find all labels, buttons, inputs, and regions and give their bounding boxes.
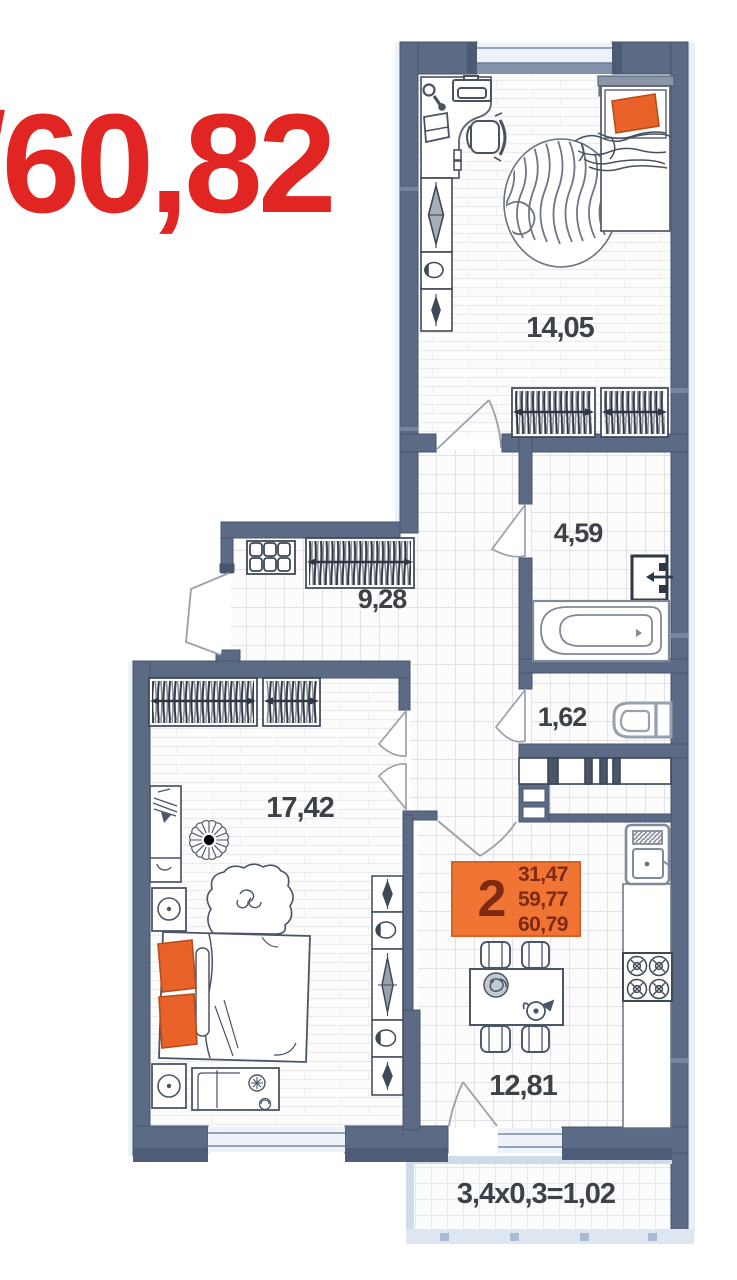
svg-text:59,77: 59,77 — [518, 888, 568, 911]
svg-text:17,42: 17,42 — [266, 792, 334, 824]
svg-text:12,81: 12,81 — [489, 1070, 557, 1102]
svg-text:1,62: 1,62 — [538, 702, 587, 732]
svg-text:/60,82: /60,82 — [0, 84, 332, 242]
svg-text:2: 2 — [478, 870, 507, 928]
svg-text:60,79: 60,79 — [518, 913, 568, 936]
svg-text:31,47: 31,47 — [518, 863, 568, 886]
svg-text:4,59: 4,59 — [554, 518, 604, 548]
svg-text:3,4x0,3=1,02: 3,4x0,3=1,02 — [457, 1178, 615, 1210]
svg-text:9,28: 9,28 — [358, 584, 408, 614]
svg-text:14,05: 14,05 — [526, 312, 594, 344]
